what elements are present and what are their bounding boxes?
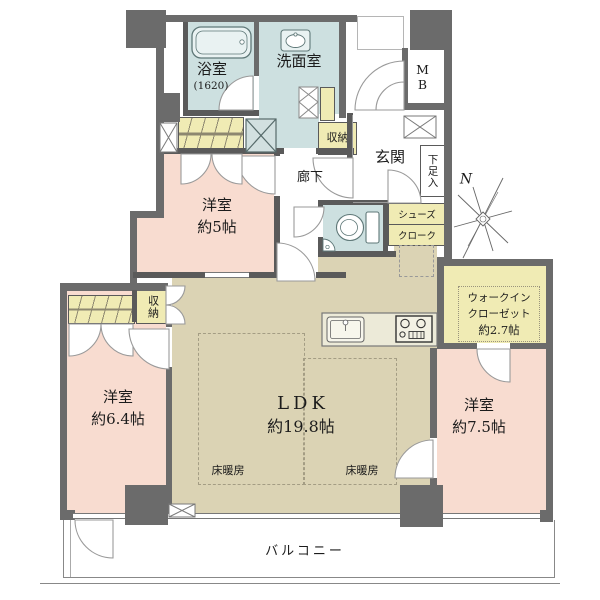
door-arc — [277, 243, 315, 281]
door-arc — [166, 305, 185, 324]
label-floor-heating-right: 床暖房 — [346, 465, 379, 477]
door-arc — [181, 154, 211, 184]
label-bathroom-size: (1620) — [194, 81, 229, 93]
label-corridor: 廊下 — [297, 171, 323, 185]
washbasin-icon — [281, 30, 310, 51]
door-arc — [388, 170, 421, 203]
washing-machine-icon — [246, 119, 276, 152]
label-ldk: LDK — [277, 394, 329, 414]
kitchen-sink-icon — [327, 317, 364, 342]
label-washroom: 洗面室 — [276, 53, 321, 70]
folding-door-icon — [299, 87, 318, 118]
label-bedroom75-size: 約7.5帖 — [452, 419, 506, 436]
label-bedroom5-size: 約5帖 — [197, 219, 237, 236]
label-entrance: 玄関 — [375, 149, 405, 166]
door-arc — [294, 207, 324, 237]
pipe-space-icon — [404, 116, 436, 138]
stove-icon — [396, 316, 432, 342]
door-arc — [395, 440, 433, 478]
pipe-space-icon — [160, 123, 177, 152]
compass — [454, 178, 512, 258]
toilet-icon — [323, 212, 379, 251]
door-arc — [69, 324, 101, 356]
door-arc — [477, 349, 510, 382]
door-arc — [212, 154, 242, 184]
door-arc — [75, 520, 113, 558]
label-bedroom64-size: 約6.4帖 — [91, 411, 145, 428]
floor-plan: 収納 シューズ クローク 収納 ウォークイン クローゼット 約2.7帖 下足入 … — [0, 0, 600, 600]
label-bedroom64: 洋室 — [103, 389, 133, 406]
label-balcony: バルコニー — [265, 545, 345, 559]
kitchen-counter — [322, 313, 437, 346]
hatch-panel-icon — [169, 504, 195, 517]
label-bathroom: 浴室 — [197, 61, 227, 78]
label-bedroom5: 洋室 — [202, 197, 232, 214]
plan-symbol-layer — [0, 0, 600, 600]
door-arc — [101, 324, 133, 356]
bathtub-icon — [192, 27, 251, 58]
door-arc — [166, 286, 185, 305]
label-ldk-size: 約19.8帖 — [267, 418, 335, 436]
compass-n-label: N — [460, 172, 472, 187]
label-bedroom75: 洋室 — [464, 397, 494, 414]
door-arc — [129, 329, 169, 369]
label-floor-heating-left: 床暖房 — [212, 465, 245, 477]
door-arc — [237, 156, 275, 194]
